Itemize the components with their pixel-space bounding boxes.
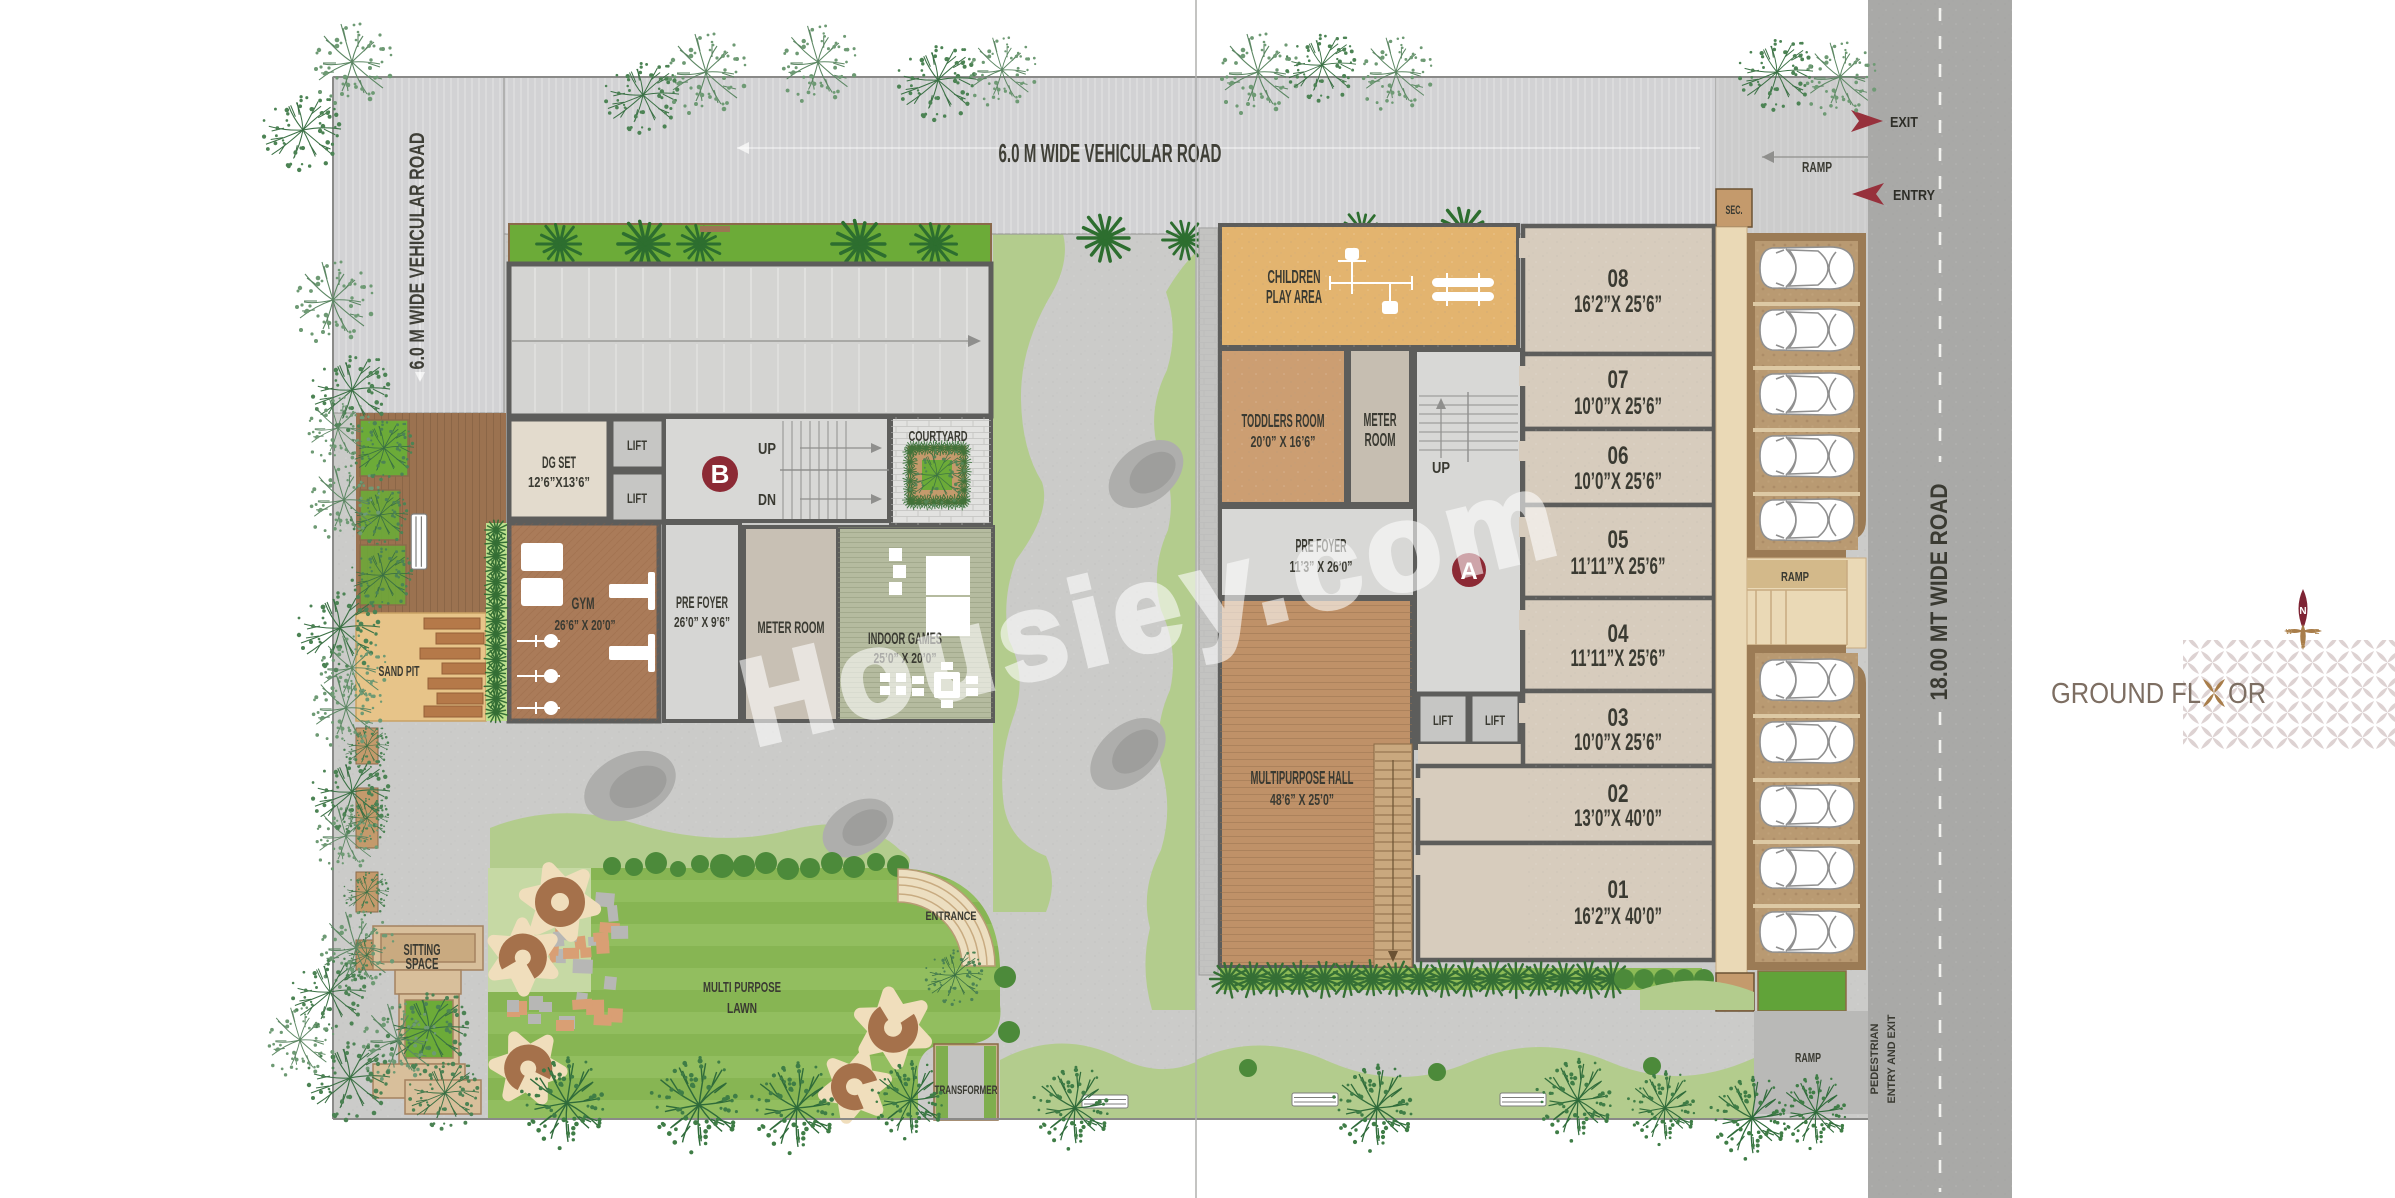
svg-text:ENTRY AND EXIT: ENTRY AND EXIT bbox=[1886, 1014, 1898, 1103]
svg-text:GYM: GYM bbox=[572, 594, 595, 613]
svg-text:SEC.: SEC. bbox=[1726, 203, 1743, 217]
svg-text:SPACE: SPACE bbox=[406, 956, 439, 973]
svg-text:MULTI PURPOSE: MULTI PURPOSE bbox=[703, 979, 781, 996]
svg-text:ENTRY: ENTRY bbox=[1893, 187, 1935, 204]
svg-text:LIFT: LIFT bbox=[1485, 712, 1505, 728]
svg-text:METER: METER bbox=[1364, 410, 1397, 430]
svg-text:LAWN: LAWN bbox=[727, 1000, 757, 1017]
svg-text:RAMP: RAMP bbox=[1802, 159, 1832, 176]
svg-text:S: S bbox=[2301, 643, 2306, 650]
svg-text:LIFT: LIFT bbox=[1433, 712, 1453, 728]
svg-text:SAND PIT: SAND PIT bbox=[379, 663, 420, 680]
svg-text:RAMP: RAMP bbox=[1795, 1050, 1821, 1065]
svg-text:PRE FOYER: PRE FOYER bbox=[676, 593, 728, 612]
svg-text:6.0 M WIDE VEHICULAR ROAD: 6.0 M WIDE VEHICULAR ROAD bbox=[406, 133, 429, 370]
svg-text:RAMP: RAMP bbox=[1781, 569, 1809, 584]
svg-text:E: E bbox=[2315, 629, 2320, 636]
svg-text:CHILDREN: CHILDREN bbox=[1268, 267, 1321, 287]
svg-text:OR: OR bbox=[2228, 678, 2266, 710]
svg-text:N: N bbox=[2299, 606, 2306, 617]
svg-text:DN: DN bbox=[758, 492, 776, 509]
svg-text:12’6”X13’6”: 12’6”X13’6” bbox=[528, 474, 590, 491]
svg-text:48’6” X 25’0”: 48’6” X 25’0” bbox=[1270, 792, 1334, 809]
svg-text:B: B bbox=[711, 459, 730, 489]
svg-text:UP: UP bbox=[758, 441, 776, 458]
svg-text:MULTIPURPOSE HALL: MULTIPURPOSE HALL bbox=[1251, 768, 1354, 788]
svg-text:TRANSFORMER: TRANSFORMER bbox=[935, 1083, 998, 1097]
svg-text:LIFT: LIFT bbox=[627, 437, 647, 453]
svg-text:ROOM: ROOM bbox=[1365, 430, 1396, 450]
svg-text:20’0” X 16’6”: 20’0” X 16’6” bbox=[1251, 434, 1316, 451]
svg-text:W: W bbox=[2286, 629, 2293, 636]
svg-text:DG SET: DG SET bbox=[542, 453, 576, 472]
svg-text:PLAY AREA: PLAY AREA bbox=[1266, 287, 1322, 307]
svg-text:EXIT: EXIT bbox=[1890, 114, 1918, 131]
svg-text:26’6” X 20’0”: 26’6” X 20’0” bbox=[555, 617, 616, 634]
svg-text:6.0 M WIDE VEHICULAR ROAD: 6.0 M WIDE VEHICULAR ROAD bbox=[999, 138, 1222, 168]
svg-text:TODDLERS ROOM: TODDLERS ROOM bbox=[1242, 411, 1325, 431]
svg-text:18.00 MT WIDE ROAD: 18.00 MT WIDE ROAD bbox=[1926, 484, 1953, 701]
svg-text:LIFT: LIFT bbox=[627, 490, 647, 506]
svg-text:COURTYARD: COURTYARD bbox=[909, 428, 968, 445]
svg-text:26’0” X 9’6”: 26’0” X 9’6” bbox=[674, 614, 730, 631]
svg-text:PEDESTRIAN: PEDESTRIAN bbox=[1869, 1023, 1881, 1094]
svg-text:ENTRANCE: ENTRANCE bbox=[926, 909, 977, 923]
svg-text:GROUND FL: GROUND FL bbox=[2051, 678, 2201, 710]
